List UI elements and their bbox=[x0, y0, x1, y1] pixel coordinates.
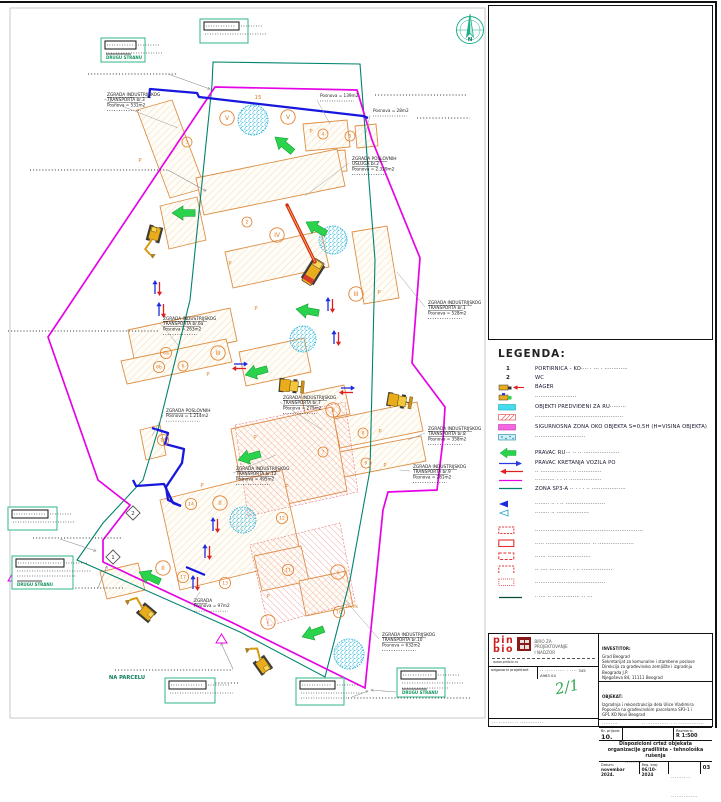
legend-label: ··········· · · ·· ·················· bbox=[535, 477, 602, 483]
rect-dash3-icon bbox=[498, 552, 528, 561]
doc-type-row: ········· ·· ············ · ·· ·········… bbox=[599, 720, 712, 728]
svg-text:I: I bbox=[337, 569, 339, 576]
pinbio-logo-mark-icon bbox=[517, 637, 531, 651]
svg-text:9: 9 bbox=[365, 461, 368, 467]
svg-text:Posnova = 28m2: Posnova = 28m2 bbox=[373, 108, 409, 113]
prijava-dots: ··············· ·· ········· bbox=[623, 728, 674, 740]
prijava-row: Br. prijave: 10. ··············· ·· ····… bbox=[599, 728, 712, 741]
svg-text:V: V bbox=[286, 114, 291, 121]
svg-text:N: N bbox=[468, 37, 473, 43]
arrow-green-icon bbox=[498, 447, 528, 458]
investor-cell: INVESTITOR: Grad Beograd Sekretarijat za… bbox=[599, 634, 712, 682]
legend-item-swatch-magenta: SIGURNOSNA ZONA OKO OBJEKTA S=0,5H (H=VI… bbox=[498, 422, 712, 432]
svg-text:P: P bbox=[254, 306, 258, 312]
reg-value: 06/10-2024 bbox=[642, 767, 667, 777]
callout-box bbox=[8, 507, 75, 530]
legend-number: 2 bbox=[498, 375, 528, 381]
legend-label: ······················· bbox=[535, 394, 576, 400]
datum-cell: Datum: novembar 2024. bbox=[599, 762, 640, 774]
legend-item-bager2: ······················· bbox=[498, 392, 712, 402]
legend-item-tri-outline: ········ ·· ·················· bbox=[498, 509, 712, 518]
sheet-number: 03 bbox=[701, 762, 712, 774]
svg-text:14: 14 bbox=[188, 502, 194, 508]
compass-icon: N bbox=[457, 14, 484, 44]
bottom-row: Datum: novembar 2024. Reg. broj: 06/10-2… bbox=[599, 762, 712, 774]
svg-text:II: II bbox=[161, 565, 165, 572]
callout-boxes: DRUGU STRANUDRUGU STRANUDRUGU STRANU bbox=[8, 19, 463, 705]
svg-text:2: 2 bbox=[246, 220, 249, 226]
legend-item-rect-dash5: ······································· bbox=[498, 576, 712, 589]
svg-text:1: 1 bbox=[111, 555, 115, 561]
callout-box bbox=[165, 678, 233, 703]
svg-text:Posnova = 495m2: Posnova = 495m2 bbox=[236, 476, 275, 481]
svg-text:12: 12 bbox=[279, 516, 285, 522]
legend-label: ········································… bbox=[535, 414, 623, 420]
role-label: odgovorni projektant bbox=[489, 667, 538, 679]
legend-item-num-1: 1PORTIRNICA - KO···· · ··· · ···········… bbox=[498, 365, 712, 374]
legend-item-bager: BAGER bbox=[498, 382, 712, 392]
svg-text:11: 11 bbox=[285, 568, 291, 574]
rect-dash4-icon bbox=[498, 565, 528, 574]
callout-box: DRUGU STRANU bbox=[101, 38, 163, 62]
svg-text:P: P bbox=[200, 483, 204, 489]
legend-label: ····· ························· ·· ·····… bbox=[535, 541, 634, 547]
legend-item-rect-dash4: ·· ···· ·········· · · ·· ··············… bbox=[498, 563, 712, 576]
legend-label: PORTIRNICA - KO···· · ··· · ············… bbox=[535, 366, 628, 372]
rect-dash2-icon bbox=[498, 539, 528, 548]
svg-text:III: III bbox=[353, 291, 359, 298]
svg-text:Posnova = 139m2: Posnova = 139m2 bbox=[320, 93, 359, 98]
line-dark-icon bbox=[498, 595, 528, 600]
svg-text:I: I bbox=[267, 619, 269, 626]
swatch-cyanhatch-icon bbox=[498, 434, 528, 441]
svg-text:5: 5 bbox=[349, 134, 352, 140]
line-magenta-icon bbox=[498, 478, 528, 483]
legend-title: LEGENDA: bbox=[498, 348, 712, 360]
svg-text:Posnova = 358m2: Posnova = 358m2 bbox=[428, 436, 467, 441]
svg-text:Posnova = 263m2: Posnova = 263m2 bbox=[163, 326, 202, 331]
svg-text:15: 15 bbox=[255, 95, 262, 101]
legend-label: PRAVAC KRETANJA VOZILA PO bbox=[535, 460, 616, 466]
legend-label: ···························· bbox=[535, 434, 585, 440]
svg-text:ZGRADA INDUSTRIJSKOG: ZGRADA INDUSTRIJSKOG bbox=[107, 92, 160, 98]
legend-label: ······································· bbox=[535, 580, 605, 586]
legend-label: PRAVAC RU··· ·· ·· ···················· bbox=[535, 450, 619, 456]
bottom-left-cell: ··· ········ ·· ············· bbox=[489, 718, 598, 726]
role-row: odgovorni projektant ·· ··········· · ··… bbox=[489, 666, 598, 679]
svg-text:8: 8 bbox=[362, 431, 365, 437]
swatch-magenta-icon bbox=[498, 424, 528, 431]
legend-item-arrow-green: PRAVAC RU··· ·· ·· ···················· bbox=[498, 446, 712, 459]
br-prijave-cell: Br. prijave: 10. bbox=[599, 728, 623, 740]
tri-outline-icon bbox=[498, 509, 528, 517]
svg-text:P+Pk: P+Pk bbox=[346, 604, 358, 610]
svg-text:Posnova = 2.329m2: Posnova = 2.329m2 bbox=[352, 166, 395, 171]
title-block: pin bio BIRO ZA PROJEKTOVANJE I NADZOR w… bbox=[488, 633, 713, 727]
excavator-icon bbox=[142, 224, 164, 259]
svg-text:Posnova = 281m2: Posnova = 281m2 bbox=[413, 474, 452, 479]
legend-item-line-dark: · ···· ·· ··············· ·· ··· bbox=[498, 593, 712, 602]
legend-label: ········ ·· · ·· ······················ bbox=[535, 501, 605, 507]
objekat-cell: OBJEKAT: Izgradnja i rekonstrukcija dela… bbox=[599, 682, 712, 720]
legend-number: 1 bbox=[498, 366, 528, 372]
legend-label: WC bbox=[535, 375, 544, 381]
legend-item-num-2: 2WC bbox=[498, 374, 712, 383]
legend-item-swatch-cyan: OBJEKTI PREDVIĐENI ZA RU········· bbox=[498, 402, 712, 412]
svg-text:III: III bbox=[215, 350, 221, 357]
reg-cell: Reg. broj: 06/10-2024 bbox=[640, 762, 670, 774]
svg-text:Posnova = 528m2: Posnova = 528m2 bbox=[428, 310, 467, 315]
sheet-title: Dispozicioni crtež objekata organizacije… bbox=[599, 741, 712, 763]
legend-label: ZONA SP3-A ·· · · · ·· ·················… bbox=[535, 486, 626, 492]
legend-item-rect-dash1: ········································… bbox=[498, 524, 712, 537]
svg-text:Posnova = 1.214m2: Posnova = 1.214m2 bbox=[166, 413, 209, 418]
legend-label: ·· ··············· · ·· ············· bbox=[535, 469, 602, 475]
legend-item-line-teal: ZONA SP3-A ·· · · · ·· ·················… bbox=[498, 485, 712, 494]
legend-item-swatch-redhatch: ········································… bbox=[498, 412, 712, 422]
br-prijave-value: 10. bbox=[601, 733, 620, 741]
right-panel: LEGENDA: 1PORTIRNICA - KO···· · ··· · ··… bbox=[487, 0, 717, 728]
svg-text:NA PARCELU: NA PARCELU bbox=[109, 675, 145, 681]
legend-label: SIGURNOSNA ZONA OKO OBJEKTA S=0,5H (H=VI… bbox=[535, 424, 707, 430]
arrow-red-icon bbox=[498, 468, 528, 475]
legend-item-rect-dash3: ······ ························ bbox=[498, 550, 712, 563]
svg-text:13: 13 bbox=[222, 581, 228, 587]
handwritten-signature: 2/1 bbox=[553, 676, 580, 699]
svg-text:Posnova = 97m2: Posnova = 97m2 bbox=[194, 603, 230, 608]
svg-text:6b: 6b bbox=[156, 365, 162, 371]
title-block-data: INVESTITOR: Grad Beograd Sekretarijat za… bbox=[599, 634, 712, 726]
swatch-cyan-icon bbox=[498, 404, 528, 411]
legend-label: · ···· ·· ··············· ·· ··· bbox=[535, 594, 593, 600]
svg-text:Posnova = 531m2: Posnova = 531m2 bbox=[107, 102, 146, 107]
svg-text:P: P bbox=[138, 158, 142, 164]
svg-text:6: 6 bbox=[182, 364, 185, 370]
rect-dash1-icon bbox=[498, 526, 528, 535]
drawing-sheet: { "colors":{"magenta":"#E504E5","teal":"… bbox=[0, 0, 721, 728]
svg-text:2: 2 bbox=[131, 511, 135, 517]
legend-label: ·· ···· ·········· · · ·· ··············… bbox=[535, 567, 612, 573]
svg-text:4: 4 bbox=[322, 132, 325, 138]
bottom-dots: ········ ·· ··············· bbox=[669, 762, 701, 774]
firm-website: www.pinbio.rs bbox=[489, 660, 598, 664]
buildings bbox=[100, 100, 426, 616]
svg-text:3: 3 bbox=[186, 140, 189, 146]
legend-rows: 1PORTIRNICA - KO···· · ··· · ···········… bbox=[498, 365, 712, 602]
svg-text:7: 7 bbox=[322, 450, 325, 456]
legend-label: ········································… bbox=[535, 528, 643, 534]
svg-text:10: 10 bbox=[336, 610, 342, 616]
pinbio-logo: pin bio bbox=[493, 637, 514, 654]
dotted-annotation-lines bbox=[8, 74, 470, 698]
notes-box bbox=[488, 5, 713, 340]
title-block-firm: pin bio BIRO ZA PROJEKTOVANJE I NADZOR w… bbox=[489, 634, 599, 726]
svg-text:6a: 6a bbox=[163, 351, 169, 357]
swatch-redhatch-icon bbox=[498, 414, 528, 421]
legend-item-swatch-cyanhatch: ···························· bbox=[498, 432, 712, 442]
divider bbox=[492, 658, 595, 659]
svg-text:DRUGU STRANU: DRUGU STRANU bbox=[106, 55, 142, 60]
legend-label: OBJEKTI PREDVIĐENI ZA RU········· bbox=[535, 404, 626, 410]
legend-label: BAGER bbox=[535, 384, 554, 390]
legend-item-tri-blue: ········ ·· · ·· ······················ bbox=[498, 500, 712, 509]
svg-text:17: 17 bbox=[180, 575, 186, 581]
firm-name: BIRO ZA PROJEKTOVANJE I NADZOR bbox=[534, 637, 567, 655]
legend-item-rect-dash2: ····· ························· ·· ·····… bbox=[498, 537, 712, 550]
bager2-icon bbox=[498, 392, 528, 402]
arrow-blue-icon bbox=[498, 460, 528, 467]
datum-value: novembar 2024. bbox=[601, 767, 637, 777]
svg-text:Posnova = 632m2: Posnova = 632m2 bbox=[382, 642, 421, 647]
excavator-icon bbox=[124, 592, 158, 623]
legend-item-arrow-blue: PRAVAC KRETANJA VOZILA PO bbox=[498, 459, 712, 468]
callout-box bbox=[200, 19, 266, 43]
razmera-cell: Razmera: R 1:500 bbox=[674, 728, 712, 740]
svg-text:IV: IV bbox=[274, 232, 281, 239]
bager-icon bbox=[498, 382, 528, 392]
rect-dash5-icon bbox=[498, 578, 528, 587]
svg-text:DRUGU STRANU: DRUGU STRANU bbox=[17, 582, 53, 587]
legend-label: ······ ························ bbox=[535, 554, 591, 560]
svg-text:DRUGU STRANU: DRUGU STRANU bbox=[402, 690, 438, 695]
svg-text:II: II bbox=[218, 500, 222, 507]
loader-icon bbox=[278, 378, 304, 394]
legend: LEGENDA: 1PORTIRNICA - KO···· · ··· · ··… bbox=[498, 348, 712, 602]
legend-item-arrow-red: ·· ··············· · ·· ············· bbox=[498, 468, 712, 477]
razmera-value: R 1:500 bbox=[676, 733, 710, 739]
svg-text:P: P bbox=[206, 372, 210, 378]
svg-text:V: V bbox=[225, 115, 230, 122]
svg-text:16: 16 bbox=[160, 438, 166, 444]
tri-blue-icon bbox=[498, 500, 528, 508]
svg-text:II: II bbox=[331, 407, 335, 414]
line-teal-icon bbox=[498, 486, 528, 491]
legend-item-line-magenta: ··········· · · ·· ·················· bbox=[498, 476, 712, 485]
na-parcelu-label: NA PARCELU bbox=[109, 675, 145, 681]
callout-box: DRUGU STRANU bbox=[397, 668, 463, 697]
legend-label: ········ ·· ·················· bbox=[535, 510, 589, 516]
